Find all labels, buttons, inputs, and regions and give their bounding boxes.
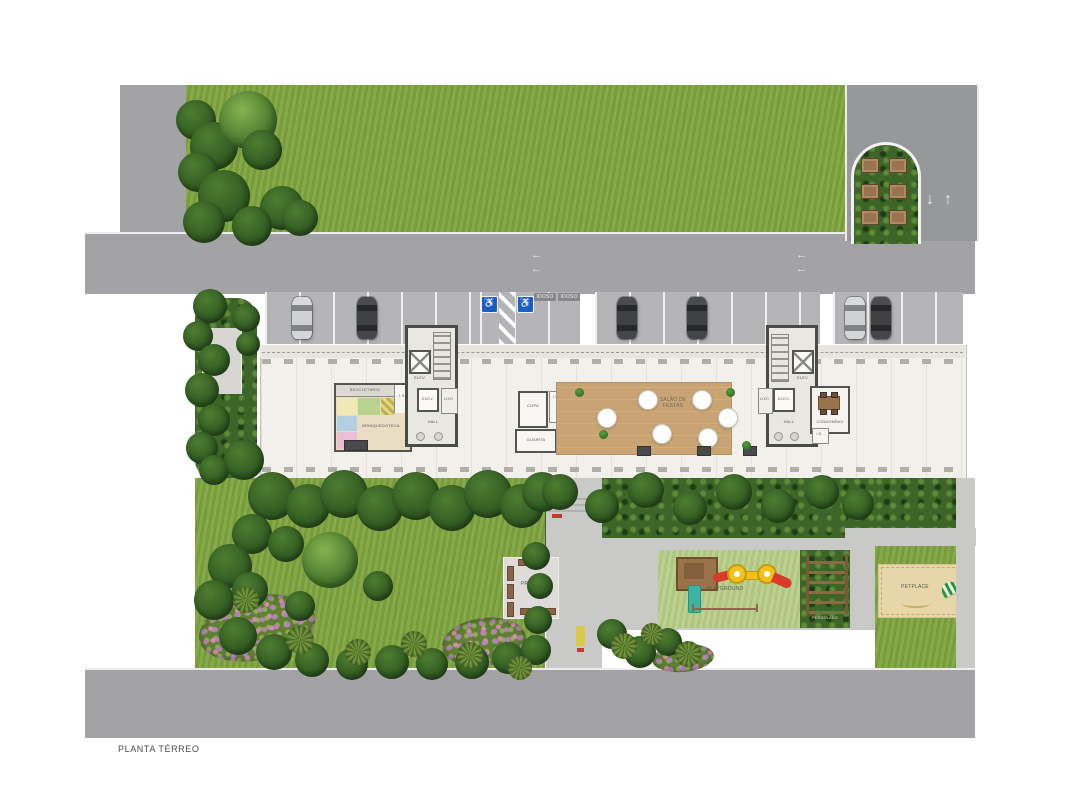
elev-label: ELEV. xyxy=(773,397,795,402)
shrub-icon xyxy=(285,591,315,621)
party-table xyxy=(638,390,658,410)
shrub-icon xyxy=(242,130,282,170)
party-table xyxy=(652,424,672,444)
lane-arrow-left-icon: ← xyxy=(531,250,542,261)
elevator-shaft xyxy=(792,350,814,374)
shrub-icon xyxy=(232,206,272,246)
play-mat-green xyxy=(358,398,380,415)
play-deck-top xyxy=(684,563,704,579)
bicicletario-label: BICICLETÁRIO xyxy=(336,388,394,393)
shrub-icon xyxy=(185,373,219,407)
parked-car xyxy=(845,297,865,339)
shrub-icon xyxy=(585,489,619,523)
parked-car xyxy=(687,297,707,339)
tactile-strip-yellow xyxy=(576,626,585,646)
lane-arrow-up-icon: ↑ xyxy=(944,192,952,208)
stairwell xyxy=(433,332,451,380)
street-top-left xyxy=(120,85,188,233)
room-condominio xyxy=(810,386,850,434)
palm-tree-icon xyxy=(401,631,427,657)
shrub-icon xyxy=(761,489,795,523)
office-chair xyxy=(820,392,827,398)
palm-tree-icon xyxy=(675,641,701,667)
planter-box xyxy=(861,210,879,225)
lixo-label: LIXO xyxy=(441,397,456,401)
hall-label: HALL xyxy=(418,420,448,425)
palm-tree-icon xyxy=(611,633,637,659)
senior-parking-label: IDOSO xyxy=(534,293,556,301)
playground-label: PLAYGROUND xyxy=(695,587,755,593)
shrub-icon xyxy=(224,440,264,480)
palm-tree-icon xyxy=(345,639,371,665)
lobby-seat xyxy=(774,432,783,441)
play-mat-checker xyxy=(381,398,394,415)
shrub-icon xyxy=(628,472,664,508)
palm-tree-icon xyxy=(641,623,663,645)
setback-dashed-line xyxy=(262,352,963,353)
condominio-label: CONDOMÍNIO xyxy=(808,420,852,424)
parked-car xyxy=(871,297,891,339)
shrub-icon xyxy=(268,526,304,562)
shrub-icon xyxy=(842,488,874,520)
kids-table xyxy=(344,440,368,451)
play-tower xyxy=(727,564,747,584)
no-parking-hatch xyxy=(499,292,515,344)
page-title: PLANTA TÉRREO xyxy=(118,744,200,754)
stairwell xyxy=(771,334,789,382)
shrub-icon xyxy=(282,200,318,236)
hall-label: HALL xyxy=(774,420,804,425)
shrub-icon xyxy=(198,344,230,376)
accessible-parking-icon: ♿ xyxy=(481,296,498,313)
potted-plant xyxy=(599,430,608,439)
planter-box xyxy=(889,210,907,225)
shrub-icon xyxy=(236,332,260,356)
walkway-east-edge xyxy=(956,478,975,668)
street-main xyxy=(85,232,975,294)
party-table xyxy=(718,408,738,428)
street-bottom xyxy=(85,668,975,738)
plaza-bench xyxy=(507,602,514,617)
parked-car xyxy=(357,297,377,339)
column-row-bottom xyxy=(262,467,963,472)
office-chair xyxy=(831,409,838,415)
shrub-icon xyxy=(805,475,839,509)
lane-arrow-down-icon: ↓ xyxy=(926,192,934,208)
accessible-parking-icon: ♿ xyxy=(517,296,534,313)
elev-label: ELEV. xyxy=(791,376,815,381)
office-chair xyxy=(820,409,827,415)
tactile-strip-red xyxy=(577,648,584,652)
parked-car xyxy=(617,297,637,339)
elev-label: ELEV. xyxy=(417,397,439,402)
decorative-signature xyxy=(902,600,930,608)
shrub-icon xyxy=(194,580,234,620)
brinquedoteca-label: BRINQUEDOTECA xyxy=(352,424,410,429)
parked-car xyxy=(292,297,312,339)
lobby-seat xyxy=(416,432,425,441)
potted-plant xyxy=(742,441,751,450)
planter-box xyxy=(889,184,907,199)
party-table xyxy=(692,390,712,410)
office-table xyxy=(818,396,840,410)
hedge-band-east xyxy=(875,478,965,528)
shrub-icon xyxy=(527,573,553,599)
planter-box xyxy=(889,158,907,173)
lobby-seat xyxy=(434,432,443,441)
seesaw-beam xyxy=(692,608,758,610)
is-label: I.S. xyxy=(812,432,827,436)
lane-arrow-left-icon: ← xyxy=(531,264,542,275)
seesaw-post xyxy=(692,604,694,612)
lixo-label: LIXO xyxy=(757,397,772,401)
senior-parking-label: IDOSO xyxy=(558,293,580,301)
plaza-bench xyxy=(507,566,514,581)
potted-plant xyxy=(575,388,584,397)
palm-tree-icon xyxy=(508,656,532,680)
cabinet xyxy=(697,446,711,456)
shrub-icon xyxy=(716,474,752,510)
cabinet xyxy=(637,446,651,456)
copa-label: COPA xyxy=(518,404,548,409)
play-mat-yellow xyxy=(337,398,357,415)
planter-box xyxy=(861,184,879,199)
tactile-strip-red xyxy=(552,514,562,518)
pergolado-label: PERGOLADO xyxy=(800,616,850,620)
lobby-seat xyxy=(790,432,799,441)
potted-plant xyxy=(726,388,735,397)
shrub-icon xyxy=(183,201,225,243)
shrub-icon xyxy=(193,289,227,323)
palm-tree-icon xyxy=(233,587,259,613)
large-tree-icon xyxy=(302,532,358,588)
palm-tree-icon xyxy=(286,626,314,654)
elevator-shaft xyxy=(409,350,431,374)
party-table xyxy=(698,428,718,448)
column-row-top xyxy=(262,359,963,364)
lane-arrow-left-icon: ← xyxy=(796,250,807,261)
shrub-icon xyxy=(219,617,257,655)
elev-label: ELEV. xyxy=(408,376,432,381)
shrub-icon xyxy=(522,542,550,570)
lane-arrow-left-icon: ← xyxy=(796,264,807,275)
room-copa xyxy=(518,391,548,428)
pergolado-structure xyxy=(806,554,848,614)
shrub-icon xyxy=(542,474,578,510)
shrub-icon xyxy=(363,571,393,601)
palm-tree-icon xyxy=(457,642,483,668)
office-chair xyxy=(831,392,838,398)
shrub-icon xyxy=(232,304,260,332)
shrub-icon xyxy=(524,606,552,634)
guarita-label: GUARITA xyxy=(515,438,557,443)
planter-box xyxy=(861,158,879,173)
shrub-icon xyxy=(673,491,707,525)
seesaw-post xyxy=(756,604,758,612)
site-plan-canvas: ↓ ↑ ← ← ← ← ♿ ♿ IDOSO IDOSO BICICLETÁRIO… xyxy=(0,0,1083,800)
party-table xyxy=(597,408,617,428)
